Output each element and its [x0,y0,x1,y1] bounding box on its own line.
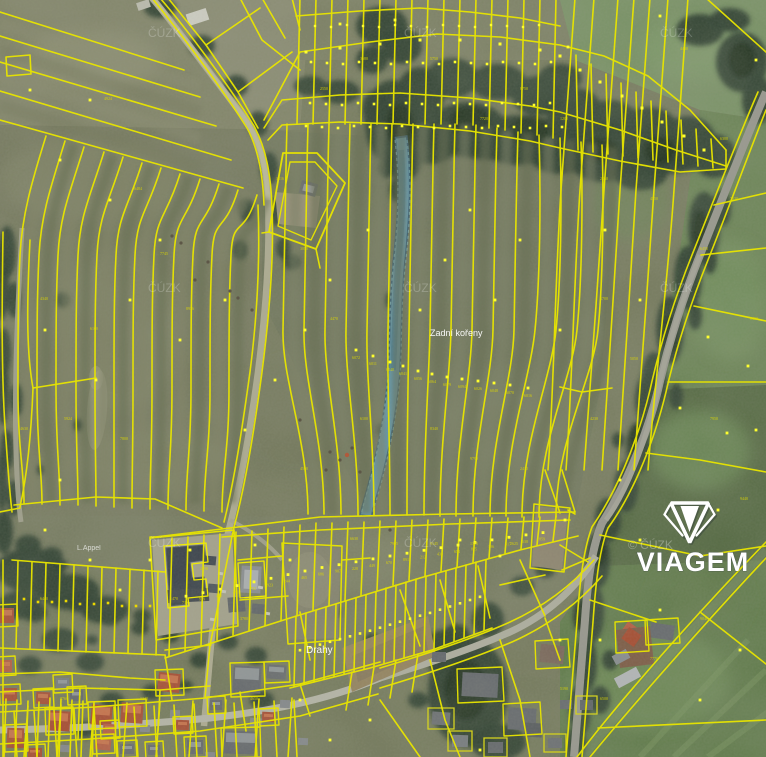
svg-text:654: 654 [454,549,460,554]
svg-text:4430: 4430 [680,46,688,51]
svg-text:7950: 7950 [710,416,718,421]
svg-text:6056: 6056 [414,376,422,381]
svg-text:ČÚZK: ČÚZK [660,25,693,40]
svg-text:6079: 6079 [443,382,451,387]
svg-text:6300: 6300 [720,136,728,141]
svg-text:L.Appel: L.Appel [77,545,101,552]
svg-text:2625: 2625 [510,541,518,546]
svg-text:6100: 6100 [90,326,98,331]
svg-text:8750: 8750 [520,86,528,91]
svg-text:465: 465 [301,575,307,580]
svg-text:Drahy: Drahy [306,645,333,656]
svg-text:Zadní kořeny: Zadní kořeny [430,328,483,338]
svg-text:686: 686 [318,572,324,577]
svg-text:ČÚZK: ČÚZK [404,535,437,550]
svg-text:6094: 6094 [458,384,466,389]
svg-text:6041: 6041 [399,371,407,376]
svg-text:6026: 6026 [474,386,482,391]
svg-text:6072: 6072 [352,355,360,360]
svg-text:907: 907 [335,569,341,574]
svg-text:6484: 6484 [134,186,142,191]
svg-text:6100: 6100 [360,416,368,421]
svg-text:718: 718 [182,600,188,605]
svg-text:5050: 5050 [630,356,638,361]
svg-text:3050: 3050 [300,246,308,251]
svg-text:6048: 6048 [490,388,498,393]
svg-text:7905: 7905 [390,541,398,546]
svg-text:3580: 3580 [360,56,368,61]
svg-text:7770: 7770 [650,656,658,661]
svg-text:891: 891 [403,557,409,562]
svg-text:702: 702 [250,586,256,591]
svg-text:260: 260 [216,593,222,598]
svg-text:5750: 5750 [430,56,438,61]
svg-text:ČÚZK: ČÚZK [148,535,181,550]
svg-text:ČÚZK: ČÚZK [148,25,181,40]
svg-text:6011: 6011 [369,361,377,366]
svg-text:VIAGEM: VIAGEM [637,547,750,577]
svg-text:4230: 4230 [590,416,598,421]
svg-text:939: 939 [199,597,205,602]
svg-text:ČÚZK: ČÚZK [660,280,693,295]
svg-text:228: 228 [352,566,358,571]
svg-text:6040: 6040 [386,367,394,372]
svg-text:2860: 2860 [600,176,608,181]
svg-text:244: 244 [284,579,290,584]
svg-text:212: 212 [420,554,426,559]
svg-text:4550: 4550 [650,196,658,201]
svg-text:4590: 4590 [300,466,308,471]
svg-text:6440: 6440 [40,596,48,601]
svg-text:8936: 8936 [186,306,194,311]
svg-text:ČÚZK: ČÚZK [404,280,437,295]
svg-text:3780: 3780 [240,616,248,621]
svg-text:9440: 9440 [740,496,748,501]
svg-text:7030: 7030 [730,196,738,201]
svg-text:8490: 8490 [750,316,758,321]
svg-text:3700: 3700 [600,296,608,301]
svg-text:7745: 7745 [160,251,168,256]
svg-text:481: 481 [233,590,239,595]
svg-text:1470: 1470 [170,596,178,601]
svg-text:1240: 1240 [140,696,148,701]
svg-text:6070: 6070 [506,390,514,395]
svg-text:196: 196 [488,544,494,549]
svg-text:ČÚZK: ČÚZK [404,25,437,40]
svg-text:6450: 6450 [700,246,708,251]
svg-text:4470: 4470 [330,316,338,321]
svg-text:2410: 2410 [520,466,528,471]
svg-text:5190: 5190 [560,686,568,691]
svg-text:4630: 4630 [20,426,28,431]
svg-text:638: 638 [522,539,528,544]
svg-text:7760: 7760 [60,696,68,701]
svg-text:2550: 2550 [320,86,328,91]
svg-text:9040: 9040 [700,616,708,621]
svg-text:449: 449 [369,563,375,568]
svg-text:4650: 4650 [250,696,258,701]
svg-text:5924: 5924 [64,416,72,421]
svg-text:7720: 7720 [480,116,488,121]
svg-text:8930: 8930 [100,686,108,691]
svg-text:6630: 6630 [350,536,358,541]
svg-text:8340: 8340 [430,426,438,431]
svg-text:6500: 6500 [600,696,608,701]
svg-text:4340: 4340 [40,296,48,301]
svg-text:6064: 6064 [428,379,436,384]
svg-text:670: 670 [386,560,392,565]
svg-text:7800: 7800 [120,436,128,441]
svg-text:4924: 4924 [104,96,112,101]
svg-text:2190: 2190 [200,566,208,571]
svg-text:859: 859 [539,537,545,542]
svg-text:1816: 1816 [276,176,284,181]
svg-text:6016: 6016 [524,393,532,398]
svg-text:1200: 1200 [560,116,568,121]
svg-text:1385: 1385 [470,541,478,546]
svg-text:9790: 9790 [470,456,478,461]
svg-text:923: 923 [267,582,273,587]
svg-text:433: 433 [437,552,443,557]
svg-text:ČÚZK: ČÚZK [148,280,181,295]
svg-text:875: 875 [471,547,477,552]
